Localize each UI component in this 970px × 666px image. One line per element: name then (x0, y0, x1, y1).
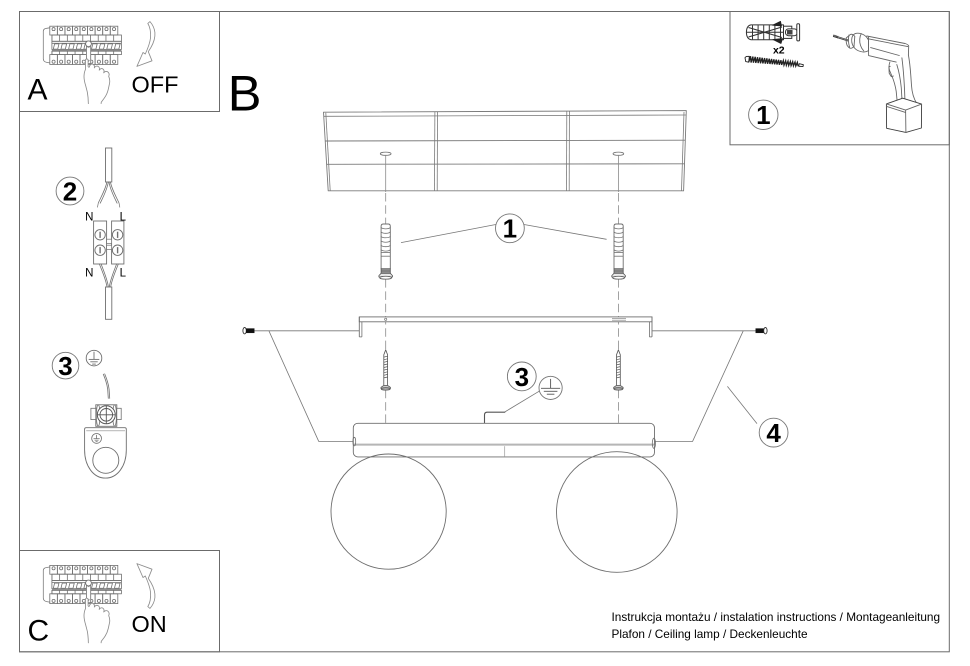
svg-text:x2: x2 (773, 44, 785, 56)
svg-text:Instrukcja montażu / instalati: Instrukcja montażu / instalation instruc… (612, 610, 941, 624)
svg-text:B: B (228, 65, 262, 122)
svg-text:N: N (85, 268, 93, 280)
svg-text:C: C (28, 615, 50, 648)
svg-text:A: A (28, 74, 48, 107)
svg-text:OFF: OFF (132, 71, 179, 97)
svg-text:ON: ON (132, 611, 167, 637)
svg-text:1: 1 (503, 214, 517, 244)
svg-text:L: L (120, 268, 127, 280)
svg-text:N: N (85, 212, 93, 224)
svg-text:2: 2 (63, 176, 77, 206)
svg-text:4: 4 (766, 418, 781, 448)
svg-text:Plafon / Ceiling lamp / Decken: Plafon / Ceiling lamp / Deckenleuchte (612, 627, 809, 641)
svg-text:3: 3 (515, 362, 529, 392)
svg-text:3: 3 (58, 351, 72, 381)
svg-text:1: 1 (756, 100, 770, 130)
